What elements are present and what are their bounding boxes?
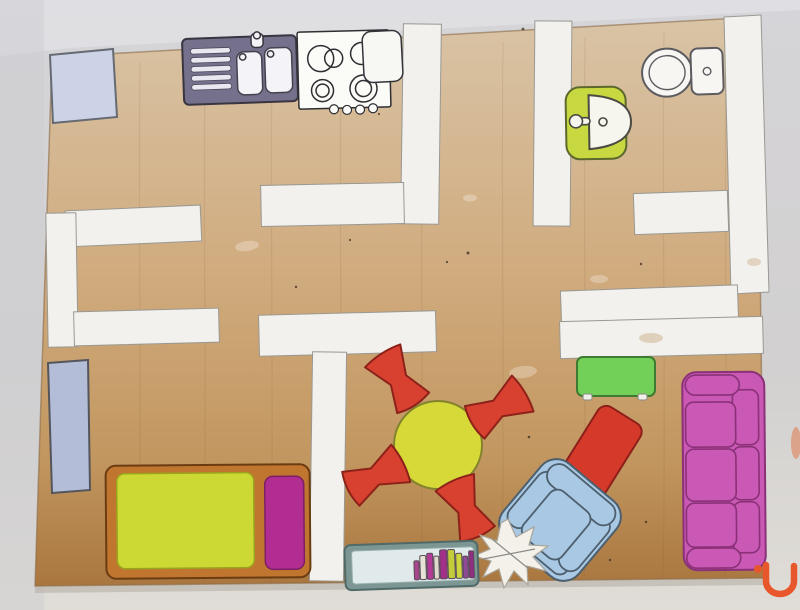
wall-kitchen-south	[261, 182, 405, 226]
photo-of-floorplan-model	[0, 0, 800, 610]
bed-pillow	[265, 476, 305, 569]
book	[456, 553, 463, 578]
wall-center-horizontal	[259, 311, 437, 357]
sofa-seat-cushion-1	[685, 402, 735, 447]
bed	[106, 464, 311, 579]
book	[420, 555, 427, 579]
wall-stain	[639, 333, 663, 343]
bathroom-sink	[565, 86, 631, 159]
book	[434, 556, 440, 579]
book	[469, 551, 475, 578]
wall-center-vertical	[309, 352, 346, 581]
counter-piece	[362, 30, 404, 83]
toilet	[641, 47, 724, 98]
wall-left-vertical	[46, 213, 78, 348]
side-table-foot-left	[583, 394, 592, 400]
sofa-seat-cushion-2	[686, 449, 736, 501]
fridge	[50, 49, 117, 123]
sofa-arm-top	[685, 375, 739, 395]
book	[414, 561, 420, 580]
sofa-seat-cushion-3	[686, 503, 736, 547]
book	[439, 550, 447, 579]
bookshelf	[344, 541, 478, 591]
book	[463, 556, 469, 578]
green-side-table	[577, 357, 655, 400]
side-table-foot-right	[638, 394, 647, 400]
wall-right-edge	[724, 15, 769, 294]
toilet-tank	[690, 48, 724, 95]
wall-left-bottom	[74, 308, 220, 346]
wall-left-top	[65, 205, 201, 247]
logo-dot	[754, 565, 762, 573]
wall-top-center-vertical	[401, 24, 442, 225]
book	[427, 553, 434, 579]
edge-stain	[747, 258, 761, 266]
kitchen-sink-unit	[182, 31, 298, 105]
pink-sofa	[682, 372, 766, 571]
blue-door-panel	[48, 360, 90, 493]
book	[447, 549, 455, 578]
sofa-arm-bottom	[687, 548, 741, 568]
wall-toilet-bottom	[633, 190, 728, 234]
bed-mattress	[117, 473, 255, 569]
